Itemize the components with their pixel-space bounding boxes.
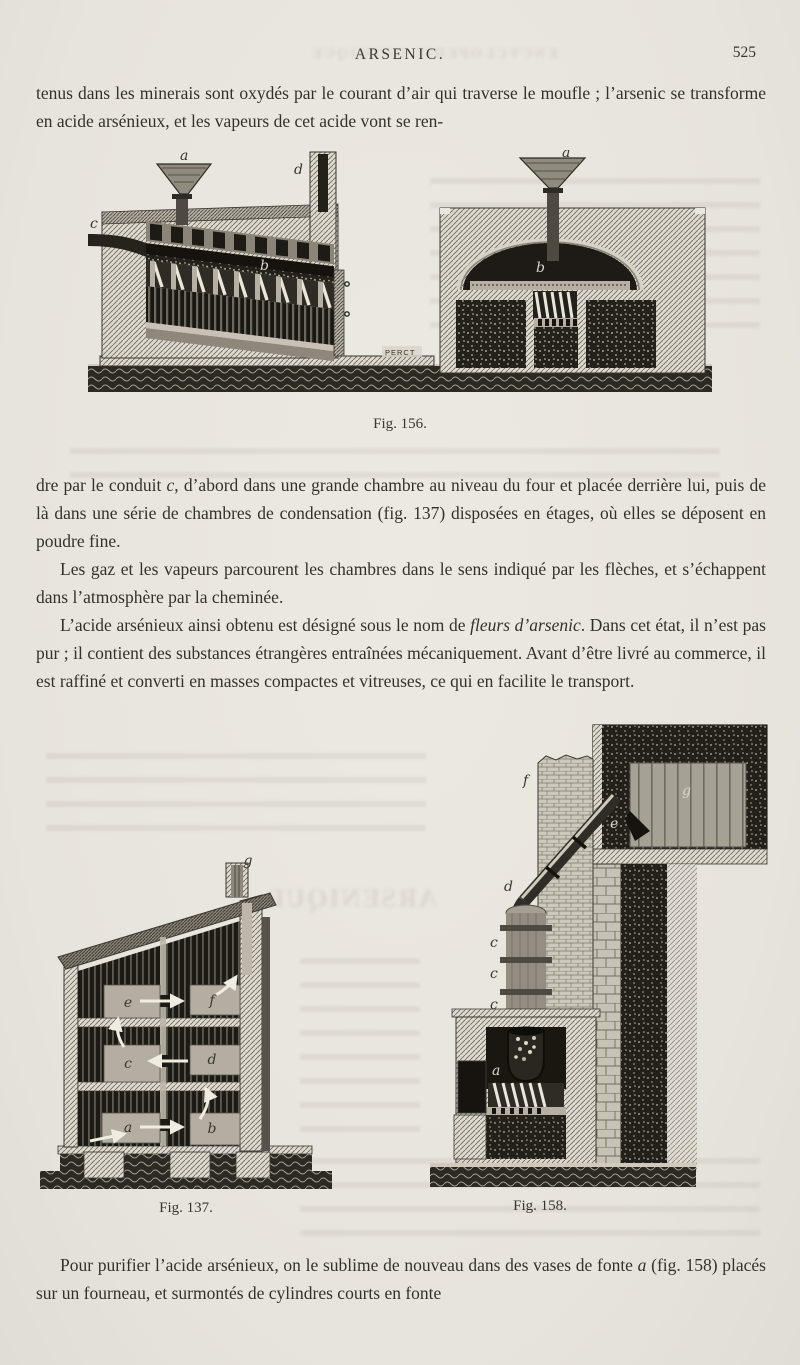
paragraph-block-top: tenus dans les minerais sont oxydés par … xyxy=(36,79,766,135)
center-partition xyxy=(160,937,166,1146)
figure-137-condensation-chambers: e f c d a b g xyxy=(40,855,332,1190)
paragraph-2: dre par le conduit c, d’abord dans une g… xyxy=(36,471,766,555)
running-title: ARSENIC. xyxy=(0,46,800,64)
paragraph-block-bottom: Pour purifier l’acide arsénieux, on le s… xyxy=(36,1251,766,1307)
bleedthrough-smudge xyxy=(46,735,426,845)
figure-156-roasting-furnaces: a d c b PERCT xyxy=(88,150,712,400)
page-number: 525 xyxy=(733,44,756,62)
label-pipe-d: d xyxy=(504,879,513,895)
label-conduit-c: c xyxy=(90,216,98,232)
firebox-left xyxy=(456,300,526,368)
label-chamber-d: d xyxy=(208,1052,217,1068)
floor-slab xyxy=(78,1082,240,1091)
foundation-pier xyxy=(236,1152,270,1178)
label-chimney-d: d xyxy=(294,162,303,178)
label-chamber-c: c xyxy=(124,1056,132,1072)
caption-fig-137: Fig. 137. xyxy=(145,1200,227,1217)
furnace-block: a xyxy=(452,1009,600,1167)
figure-158-purification-furnace: g f e d c c c xyxy=(430,715,770,1195)
foundation-pier xyxy=(84,1152,124,1178)
label-pass-e: e xyxy=(610,816,618,832)
flue-duct xyxy=(242,903,252,975)
condensation-chamber: g xyxy=(593,725,767,849)
label-chamber-e: e xyxy=(124,995,132,1011)
label-chamber-b: b xyxy=(208,1121,217,1137)
wall-face xyxy=(593,864,621,1172)
label-chimney-f: f xyxy=(522,773,531,789)
engraver-signature: PERCT xyxy=(385,348,415,357)
floor-slab xyxy=(78,1018,240,1027)
muffle-interior xyxy=(146,221,334,361)
floor-band xyxy=(593,849,767,864)
paragraph-1: tenus dans les minerais sont oxydés par … xyxy=(36,79,766,135)
cast-iron-vase xyxy=(508,1031,544,1081)
label-chamber-g: g xyxy=(682,783,691,799)
paragraph-block-middle: dre par le conduit c, d’abord dans une g… xyxy=(36,471,766,695)
caption-fig-156: Fig. 156. xyxy=(0,416,800,433)
label-muffle-b: b xyxy=(260,258,269,274)
left-furnace-section: a d c b PERCT xyxy=(88,150,434,366)
paragraph-5: Pour purifier l’acide arsénieux, on le s… xyxy=(36,1251,766,1307)
caption-fig-158: Fig. 158. xyxy=(494,1198,586,1215)
foundation-pier xyxy=(170,1152,210,1178)
ground-rubble xyxy=(430,1167,696,1187)
label-vase-a: a xyxy=(492,1063,500,1079)
label-dome-b: b xyxy=(536,260,545,276)
paragraph-4: L’acide arsénieux ainsi obtenu est désig… xyxy=(36,611,766,695)
book-page: ENCYCLOPEDIE CHIMIQUE ARSENIQUE ARSENIC.… xyxy=(0,0,800,1365)
wall-hatch-fringe xyxy=(667,864,697,1172)
wall-rubble xyxy=(621,864,667,1172)
paragraph-3: Les gaz et les vapeurs parcourent les ch… xyxy=(36,555,766,611)
label-ring-c1: c xyxy=(490,935,498,951)
label-funnel-right: a xyxy=(562,150,570,161)
label-ring-c2: c xyxy=(490,966,498,982)
right-furnace-section: a b xyxy=(440,150,705,373)
firebox-right xyxy=(586,300,656,368)
label-funnel-left: a xyxy=(180,150,188,164)
label-chamber-a: a xyxy=(124,1120,132,1136)
label-chimney-g: g xyxy=(244,855,253,869)
